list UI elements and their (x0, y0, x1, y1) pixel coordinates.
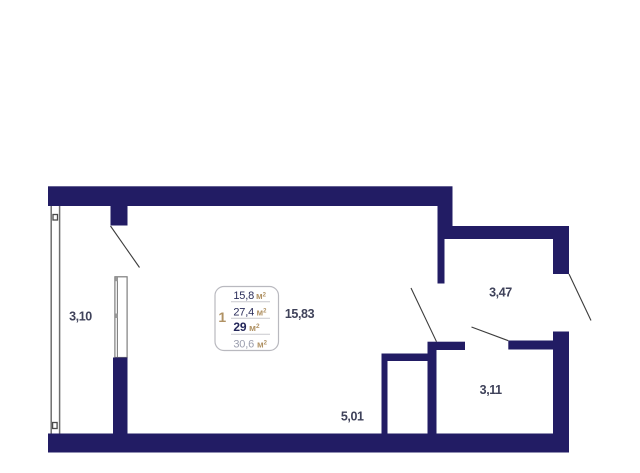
svg-text:5,01: 5,01 (341, 409, 364, 423)
svg-text:3,47: 3,47 (489, 285, 512, 299)
svg-text:1: 1 (218, 309, 226, 325)
svg-text:30,6: 30,6 (233, 338, 254, 350)
svg-text:27,4: 27,4 (233, 307, 254, 319)
svg-text:3,11: 3,11 (480, 383, 502, 397)
svg-text:15,83: 15,83 (285, 307, 315, 321)
svg-text:15,8: 15,8 (233, 290, 254, 302)
svg-text:3,10: 3,10 (69, 310, 92, 324)
svg-text:29: 29 (233, 320, 246, 334)
